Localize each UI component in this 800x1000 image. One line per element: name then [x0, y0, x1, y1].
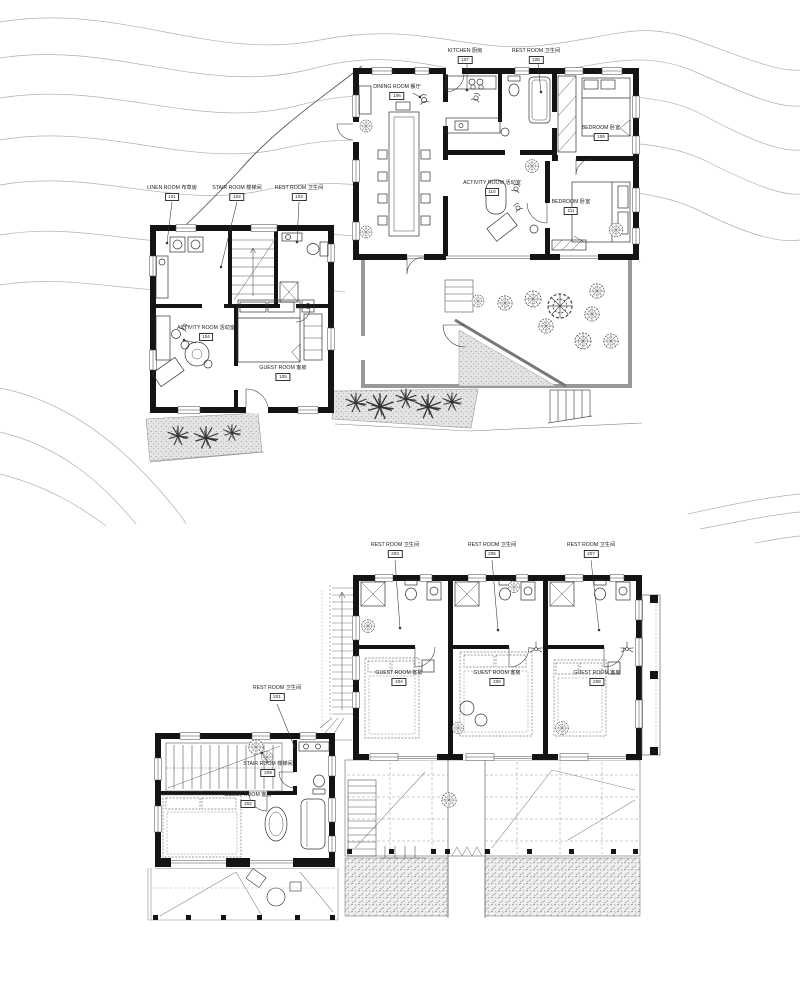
room-label-guest-206: GUEST ROOM 客房 206 [473, 671, 520, 686]
room-label-restroom-top-text: REST ROOM 卫生间 [512, 49, 560, 55]
tree-icon [590, 284, 604, 298]
room-label-guest-f1: GUEST ROOM 客房 105 [259, 366, 306, 381]
room-label-guest-208: GUEST ROOM 客房 208 [573, 671, 620, 686]
room-label-activity-main-text: ACTIVITY ROOM 活动室 [463, 181, 521, 187]
floor2-main-building [353, 575, 643, 761]
floor1-exterior-stair [548, 390, 592, 423]
tree-icon [249, 740, 263, 754]
room-label-dining: DINING ROOM 餐厅 106 [373, 85, 421, 100]
room-label-restroom-left-text: REST ROOM 卫生间 [275, 186, 323, 192]
room-label-kitchen-number: 107 [458, 56, 473, 64]
room-label-kitchen-text: KITCHEN 厨房 [448, 49, 483, 55]
room-label-guest-202-number: 202 [241, 800, 256, 808]
tree-icon [362, 620, 375, 633]
room-label-restroom-201-number: 201 [270, 693, 285, 701]
tree-icon [360, 226, 372, 238]
courtyard-tree-icons [472, 284, 618, 349]
floor2-exterior-stair [318, 585, 353, 740]
room-label-guest-206-text: GUEST ROOM 客房 [473, 671, 520, 677]
room-label-activity-main-number: 110 [485, 188, 499, 196]
floorplan-drawing [0, 0, 800, 1000]
room-label-stair-f2-text: STAIR ROOM 楼梯间 [243, 762, 292, 768]
tree-icon [575, 333, 591, 349]
room-label-restroom-left: REST ROOM 卫生间 103 [275, 186, 323, 201]
room-label-bedroom1-text: BEDROOM 卧室 [582, 126, 621, 132]
tree-icon [526, 160, 539, 173]
porch-posts [153, 915, 335, 920]
room-label-restroom-201-text: REST ROOM 卫生间 [253, 686, 301, 692]
room-label-guest-202: GUEST ROOM 客房 202 [224, 793, 271, 808]
deck-posts [347, 849, 638, 854]
tree-icon [360, 120, 372, 132]
tree-icon [472, 295, 484, 307]
room-label-stair-f2: STAIR ROOM 楼梯间 209 [243, 762, 292, 777]
room-label-linen-text: LINEN ROOM 布草房 [147, 186, 197, 192]
tree-icon [508, 581, 519, 592]
room-label-guest-204-text: GUEST ROOM 客房 [375, 671, 422, 677]
tree-icon [442, 793, 456, 807]
tree-icon [539, 319, 553, 333]
floor1-courtyard [361, 260, 632, 388]
room-label-activity-left: ACTIVITY ROOM 活动室 104 [177, 326, 235, 341]
room-label-guest-206-number: 206 [490, 678, 505, 686]
room-label-guest-208-number: 208 [590, 678, 605, 686]
tree-icon [525, 291, 541, 307]
tree-icon [585, 307, 599, 321]
room-label-guest-208-text: GUEST ROOM 客房 [573, 671, 620, 677]
room-label-kitchen: KITCHEN 厨房 107 [448, 49, 483, 64]
room-label-restroom-205-text: REST ROOM 卫生间 [468, 543, 516, 549]
floorplan-sheet: KITCHEN 厨房 107 REST ROOM 卫生间 108 DINING … [0, 0, 800, 1000]
floor2-balcony [642, 595, 660, 755]
room-label-stair-f1: STAIR ROOM 楼梯间 102 [212, 186, 261, 201]
room-label-guest-202-text: GUEST ROOM 客房 [224, 793, 271, 799]
room-label-restroom-203-number: 203 [388, 550, 403, 558]
room-label-bedroom1-number: 109 [594, 133, 609, 141]
room-label-bedroom2-number: 111 [564, 207, 578, 215]
room-label-activity-left-text: ACTIVITY ROOM 活动室 [177, 326, 235, 332]
room-label-dining-text: DINING ROOM 餐厅 [373, 85, 421, 91]
room-label-restroom-205: REST ROOM 卫生间 205 [468, 543, 516, 558]
tree-icon [609, 223, 623, 237]
room-label-restroom-207-text: REST ROOM 卫生间 [567, 543, 615, 549]
tree-icon [604, 334, 618, 348]
room-label-restroom-203-text: REST ROOM 卫生间 [371, 543, 419, 549]
floor2-deck [345, 758, 640, 918]
room-label-activity-main: ACTIVITY ROOM 活动室 110 [463, 181, 521, 196]
room-label-guest-f1-text: GUEST ROOM 客房 [259, 366, 306, 372]
room-label-restroom-201: REST ROOM 卫生间 201 [253, 686, 301, 701]
tree-icon [556, 722, 569, 735]
floor2-plan [148, 560, 660, 920]
room-label-bedroom2-text: BEDROOM 卧室 [552, 200, 591, 206]
floor2-porch [148, 868, 338, 920]
room-label-restroom-top-number: 108 [529, 56, 544, 64]
room-label-dining-number: 106 [390, 92, 405, 100]
room-label-restroom-top: REST ROOM 卫生间 108 [512, 49, 560, 64]
tree-icon [498, 296, 512, 310]
room-label-restroom-203: REST ROOM 卫生间 203 [371, 543, 419, 558]
floor1-left-building [150, 225, 335, 414]
room-label-bedroom1: BEDROOM 卧室 109 [582, 126, 621, 141]
room-label-restroom-207-number: 207 [584, 550, 599, 558]
room-label-stair-f1-text: STAIR ROOM 楼梯间 [212, 186, 261, 192]
room-label-bedroom2: BEDROOM 卧室 111 [552, 200, 591, 215]
floor1-plan [146, 64, 642, 462]
courtyard-steps [445, 280, 473, 312]
room-label-linen-number: 101 [165, 193, 180, 201]
tree-icon [548, 294, 572, 318]
room-label-activity-left-number: 104 [199, 333, 214, 341]
tree-icon [452, 722, 463, 733]
room-label-restroom-207: REST ROOM 卫生间 207 [567, 543, 615, 558]
room-label-restroom-left-number: 103 [292, 193, 307, 201]
room-label-guest-204: GUEST ROOM 客房 204 [375, 671, 422, 686]
room-label-stair-f1-number: 102 [230, 193, 245, 201]
room-label-guest-204-number: 204 [392, 678, 407, 686]
room-label-linen: LINEN ROOM 布草房 101 [147, 186, 197, 201]
room-label-restroom-205-number: 205 [485, 550, 500, 558]
room-label-guest-f1-number: 105 [276, 373, 291, 381]
room-label-stair-f2-number: 209 [261, 769, 276, 777]
